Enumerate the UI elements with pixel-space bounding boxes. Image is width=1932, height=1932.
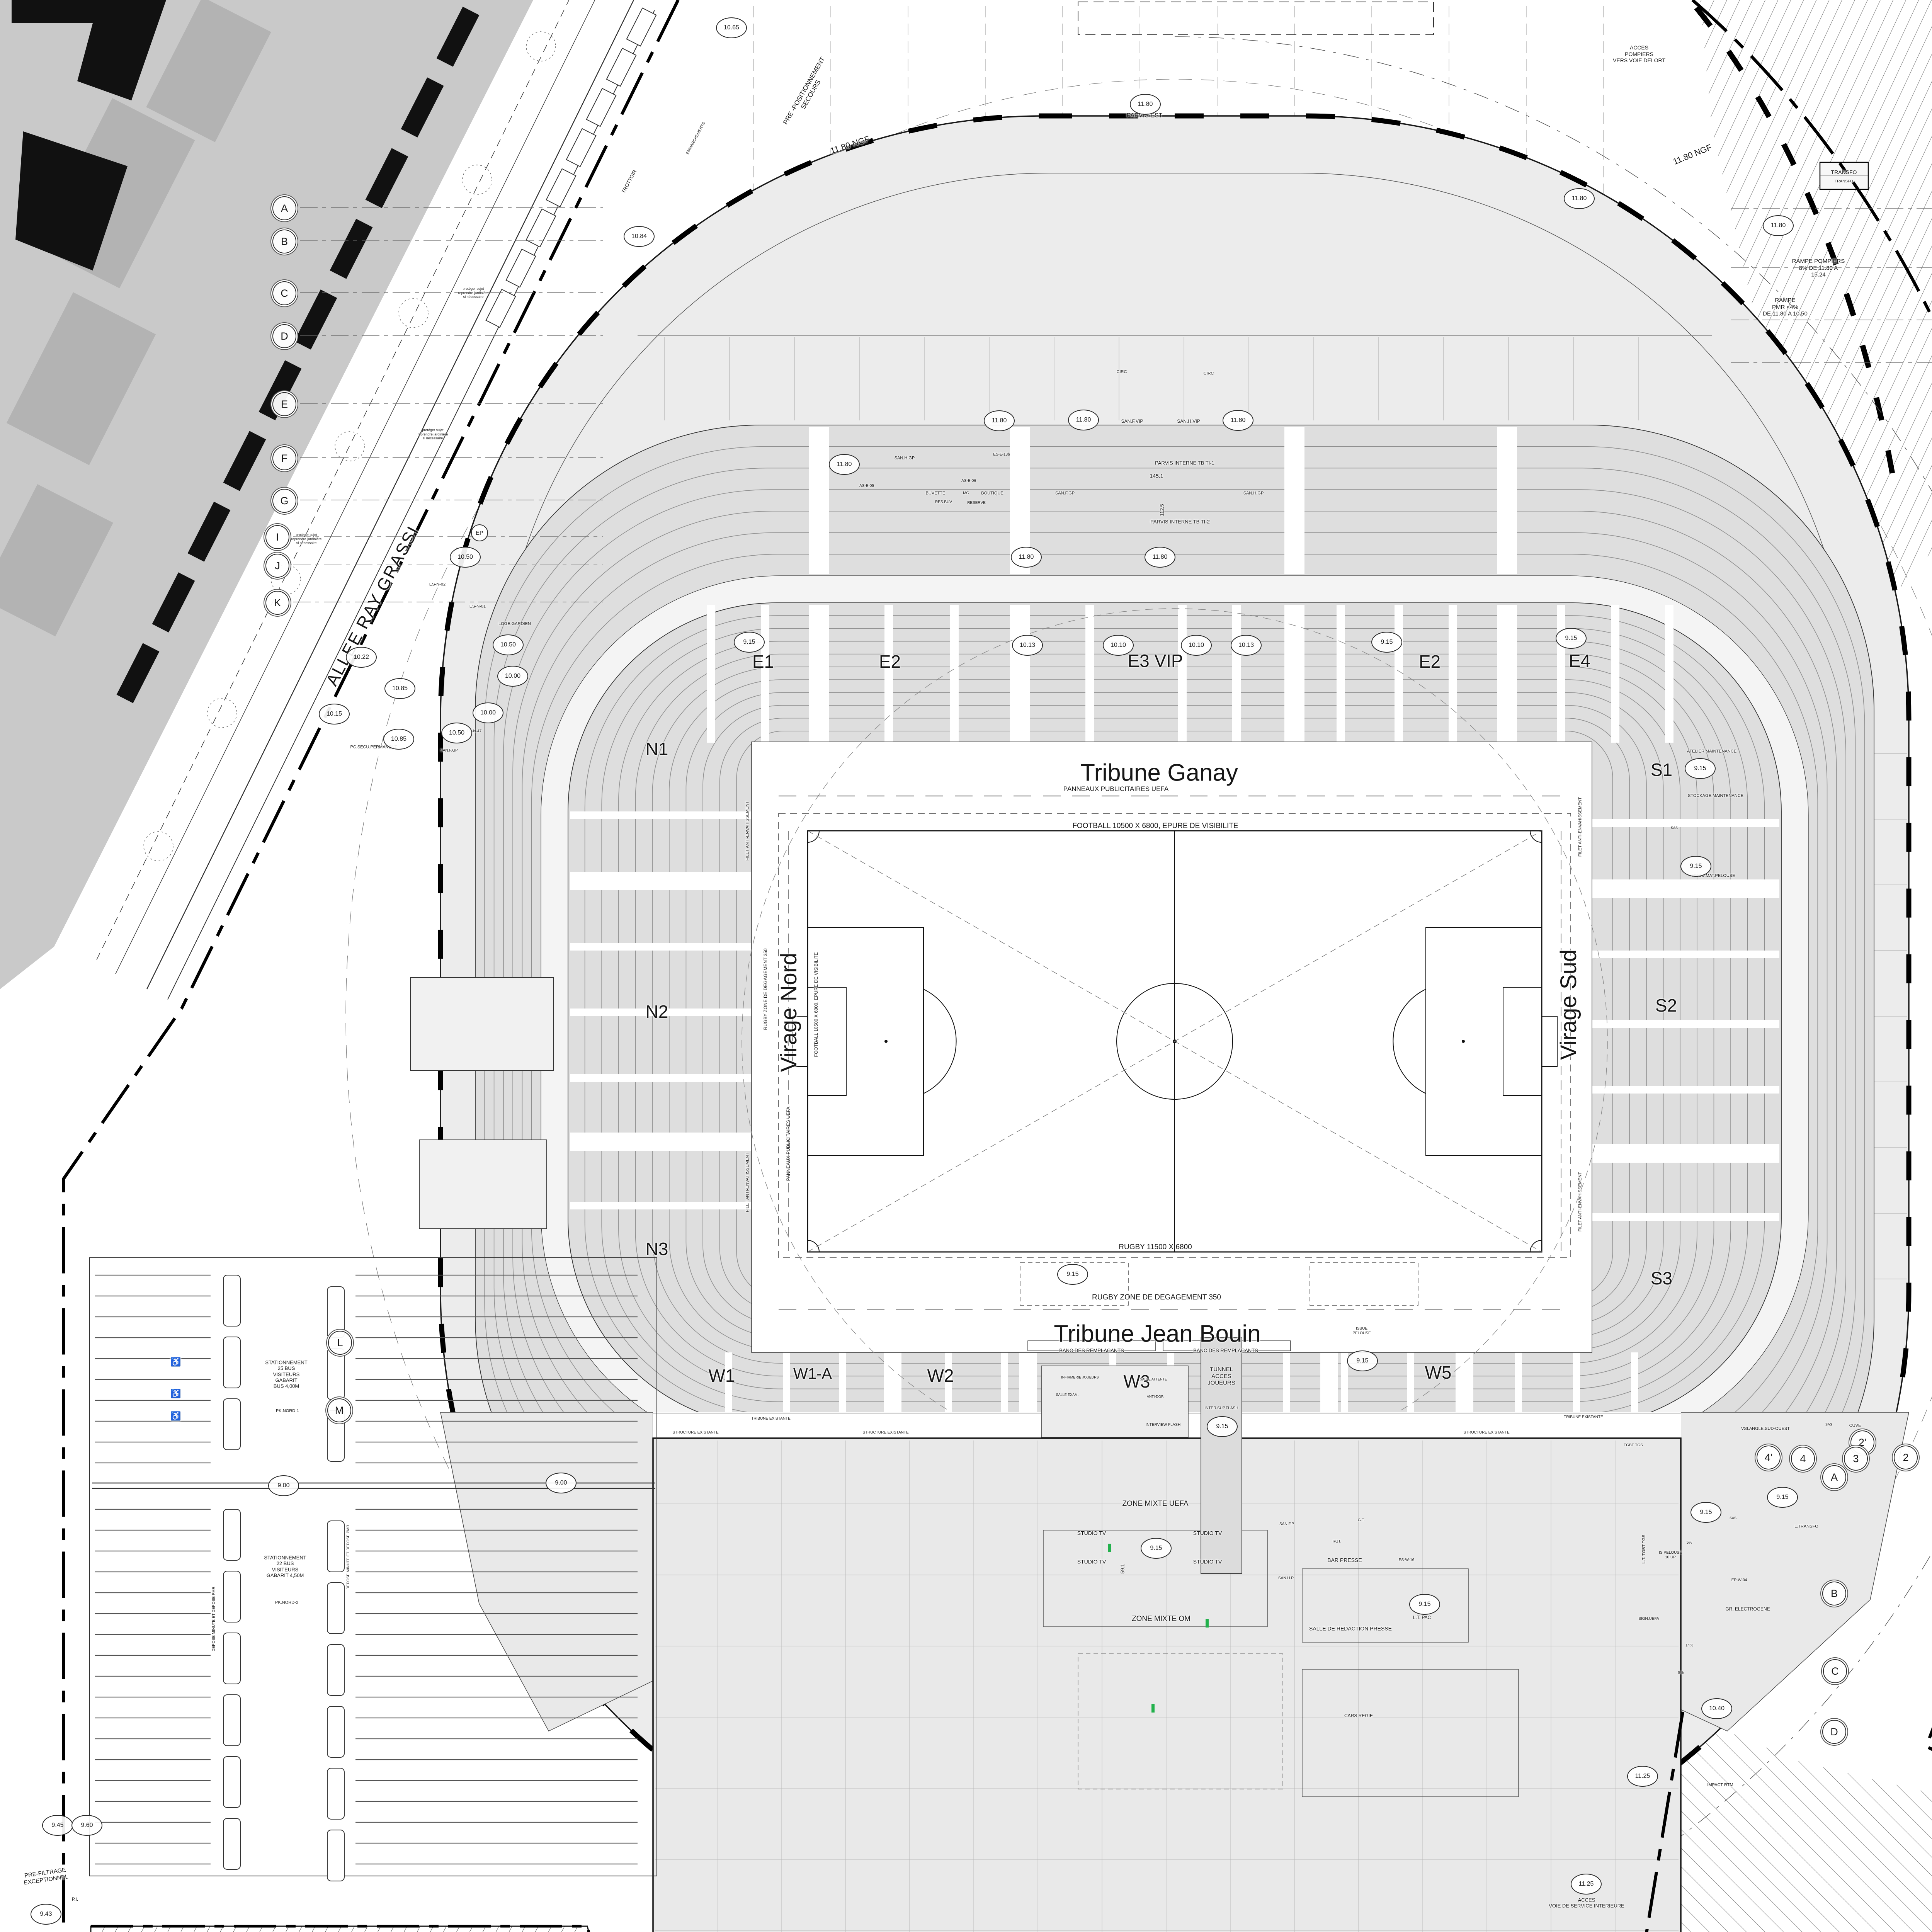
bar-presse: BAR PRESSE xyxy=(1327,1557,1362,1564)
virage-sud: Virage Sud xyxy=(1556,949,1582,1060)
rgt: RGT. xyxy=(1333,1539,1342,1544)
filet-se: FILET ANTI-ENVAHISSEMENT xyxy=(1578,1172,1583,1231)
loge-gardien: LOGE.GARDIEN xyxy=(498,622,531,627)
grid-bubble: E xyxy=(272,392,296,416)
level-marker: 9.15 xyxy=(1685,758,1716,779)
es-n-01: ES-N-01 xyxy=(469,604,486,609)
level-marker: 11.80 xyxy=(829,454,860,475)
dim-145-1: 145.1 xyxy=(1150,473,1163,480)
section-n1: N1 xyxy=(646,738,668,759)
section-e2-left: E2 xyxy=(879,651,901,672)
level-marker: 11.80 xyxy=(1223,410,1253,431)
tunnel: TUNNEL ACCES JOUEURS xyxy=(1207,1366,1235,1386)
ep-w-04: EP-W-04 xyxy=(1731,1578,1747,1583)
depose-1: DEPOSE MINUTE ET DEPOSE PMR xyxy=(212,1587,216,1651)
reserve: RESERVE xyxy=(967,501,986,505)
panneaux-uefa: PANNEAUX PUBLICITAIRES UEFA xyxy=(1063,785,1168,793)
ngf-right: 11.80 NGF xyxy=(1672,142,1713,167)
gt: G.T. xyxy=(1358,1518,1365,1523)
level-marker: 9.45 xyxy=(42,1815,73,1836)
acces-pompiers: ACCES POMPIERS VERS VOIE DELORT xyxy=(1613,44,1665,64)
pi-marker: P.I. xyxy=(72,1896,78,1902)
pct-5b: 5% xyxy=(1678,1671,1684,1675)
virage-nord: Virage Nord xyxy=(776,953,802,1072)
grid-bubble: K xyxy=(265,591,289,615)
grid-bubble: B xyxy=(1822,1582,1846,1605)
level-marker: 11.80 xyxy=(1763,215,1794,236)
level-marker: 9.15 xyxy=(1347,1350,1378,1371)
acces-voie-1: ACCES VOIE DE SERVICE INTERIEURE xyxy=(1549,1897,1624,1909)
issue-pelouse: ISSUE PELOUSE xyxy=(1352,1327,1371,1336)
lt-pac: L.T. PAC xyxy=(1413,1615,1431,1620)
grid-bubble: 2 xyxy=(1894,1446,1918,1469)
section-e4: E4 xyxy=(1569,650,1590,671)
section-e3-vip: E3 VIP xyxy=(1128,650,1183,671)
pct-14: 14% xyxy=(1685,1643,1693,1648)
grid-bubble: G xyxy=(272,489,296,513)
pmr-icon-3: ♿ xyxy=(170,1411,181,1421)
studio-tv-4: STUDIO TV xyxy=(1193,1559,1222,1565)
depose-2: DEPOSE MINUTE ET DEPOSE PMR xyxy=(346,1525,351,1590)
grid-bubble: EP xyxy=(471,524,488,541)
level-marker: 10.84 xyxy=(624,226,655,247)
grid-bubble: J xyxy=(265,554,289,578)
section-n2: N2 xyxy=(646,1001,668,1022)
sas-ring: SAS xyxy=(1671,826,1678,830)
ngf-left: 11.80 NGF xyxy=(829,134,871,156)
boutique: BOUTIQUE xyxy=(981,491,1003,496)
parvis-interne-1: PARVIS INTERNE TB TI-1 xyxy=(1155,460,1214,466)
level-marker: 10.50 xyxy=(450,547,481,568)
atelier-maintenance: ATELIER.MAINTENANCE xyxy=(1687,749,1736,754)
section-s3: S3 xyxy=(1651,1268,1672,1289)
mc: MC xyxy=(963,491,969,496)
level-marker: 11.80 xyxy=(1564,188,1595,209)
football-dim: FOOTBALL 10500 X 6800, EPURE DE VISIBILI… xyxy=(1072,822,1238,830)
tribune-jean-bouin: Tribune Jean Bouin xyxy=(1054,1320,1260,1348)
level-marker: 11.25 xyxy=(1627,1766,1658,1787)
level-marker: 9.15 xyxy=(1207,1416,1238,1437)
san-h-gp: SAN.H.GP xyxy=(1243,491,1264,496)
section-s2: S2 xyxy=(1655,995,1677,1016)
grid-bubble: D xyxy=(272,324,296,348)
level-marker: 9.15 xyxy=(1690,1502,1721,1523)
grid-bubble: 4 xyxy=(1791,1447,1815,1471)
cars-regie: CARS REGIE xyxy=(1344,1713,1373,1718)
plan-annotations: Tribune GanayTribune Jean BouinVirage No… xyxy=(0,0,1932,1932)
studio-tv-3: STUDIO TV xyxy=(1077,1559,1106,1565)
emmarchements: EMMARCHEMENTS xyxy=(685,121,706,155)
level-marker: 10.13 xyxy=(1012,635,1043,656)
anti-dop: ANTI-DOP. xyxy=(1147,1395,1164,1399)
san-h-p: SAN.H.P xyxy=(1278,1576,1294,1581)
stockage-maintenance: STOCKAGE.MAINTENANCE xyxy=(1688,794,1743,799)
grid-bubble: A xyxy=(1822,1465,1846,1489)
san-h-gp-2: SAN.H.GP xyxy=(895,456,915,461)
salle-exam: SALLE EXAM. xyxy=(1056,1393,1079,1397)
level-marker: 11.80 xyxy=(1130,94,1161,115)
studio-tv-1: STUDIO TV xyxy=(1077,1530,1106,1537)
es-n-02: ES-N-02 xyxy=(429,582,446,587)
grid-bubble: A xyxy=(272,196,296,220)
circ-1: CIRC xyxy=(1117,370,1127,375)
res-buv: RES.BUV xyxy=(935,500,952,505)
level-marker: 9.15 xyxy=(1767,1487,1798,1508)
grid-bubble: C xyxy=(272,281,296,305)
rampe-pompiers: RAMPE POMPIERS 8% DE 11.80 A 15.24 xyxy=(1792,258,1845,278)
vsi-angle: VSI.ANGLE.SUD-OUEST xyxy=(1741,1427,1790,1432)
zone-mixte-uefa: ZONE MIXTE UEFA xyxy=(1122,1500,1188,1508)
level-marker: 10.50 xyxy=(493,634,524,655)
protege-3: protéger sujet reprendre jardinière si n… xyxy=(291,533,322,545)
level-marker: 9.00 xyxy=(546,1473,577,1493)
pmr-icon-1: ♿ xyxy=(170,1357,181,1367)
banc-left: BANC DES REMPLAÇANTS xyxy=(1059,1347,1124,1353)
studio-tv-2: STUDIO TV xyxy=(1193,1530,1222,1537)
salle-redaction: SALLE DE REDACTION PRESSE xyxy=(1309,1626,1392,1632)
rugby-zone: RUGBY ZONE DE DEGAGEMENT 350 xyxy=(1092,1293,1221,1302)
pre-filtrage: PRE-FILTRAGE EXCEPTIONNEL xyxy=(22,1866,69,1886)
trottoir: TROTTOIR xyxy=(621,169,638,194)
grid-bubble: D xyxy=(1822,1720,1846,1744)
parvis-interne-2: PARVIS INTERNE TB TI-2 xyxy=(1150,519,1210,524)
sas-2: SAS xyxy=(1730,1516,1736,1520)
grid-bubble: I xyxy=(265,525,289,549)
san-f-vip: SAN.F.VIP xyxy=(1121,418,1143,424)
level-marker: 10.10 xyxy=(1181,635,1212,656)
stadium-site-plan: Tribune GanayTribune Jean BouinVirage No… xyxy=(0,0,1932,1932)
level-marker: 10.00 xyxy=(473,702,503,723)
tribune-ganay: Tribune Ganay xyxy=(1080,759,1238,787)
level-marker: 9.15 xyxy=(1141,1538,1172,1559)
section-s1: S1 xyxy=(1651,759,1672,780)
level-marker: 9.15 xyxy=(1057,1264,1088,1285)
section-w2: W2 xyxy=(927,1365,954,1386)
sign-uefa: SIGN.UEFA xyxy=(1638,1617,1659,1621)
as-e-05: AS-E-05 xyxy=(859,484,874,488)
pmr-icon-2: ♿ xyxy=(170,1389,181,1399)
es-e-13b: ES-E-13b xyxy=(993,452,1010,457)
level-marker: 9.60 xyxy=(71,1815,102,1836)
level-marker: 10.10 xyxy=(1103,635,1134,656)
rugby-zone-w: RUGBY ZONE DE DEGAGEMENT 350 xyxy=(763,949,768,1030)
tgbt-tgs: TGBT TGS xyxy=(1624,1443,1643,1448)
transfo-2: TRANSFO xyxy=(1835,179,1853,184)
level-marker: 9.15 xyxy=(734,632,765,653)
es-w-16: ES-W-16 xyxy=(1399,1558,1414,1563)
tribune-existante-1: TRIBUNE EXISTANTE xyxy=(751,1417,791,1421)
grid-bubble: B xyxy=(272,230,296,253)
level-marker: 11.80 xyxy=(984,410,1015,431)
football-dim-w: FOOTBALL 10500 X 6800, EPURE DE VISIBILI… xyxy=(813,952,819,1057)
level-marker: 9.15 xyxy=(1556,628,1587,649)
structure-existante-3: STRUCTURE EXISTANTE xyxy=(1463,1430,1509,1435)
structure-existante-2: STRUCTURE EXISTANTE xyxy=(862,1430,908,1435)
level-marker: 10.50 xyxy=(441,723,472,743)
level-marker: 11.80 xyxy=(1068,410,1099,430)
filet-ne: FILET ANTI-ENVAHISSEMENT xyxy=(1578,797,1583,857)
grid-bubble: M xyxy=(327,1398,351,1422)
rugby-dim: RUGBY 11500 X 6800 xyxy=(1119,1243,1192,1252)
as-e-06: AS-E-06 xyxy=(961,479,976,483)
is-pelouse: IS PELOUSE 10 UP xyxy=(1659,1551,1682,1560)
level-marker: 10.22 xyxy=(346,647,377,668)
transfo: TRANSFO xyxy=(1831,169,1857,176)
level-marker: 11.80 xyxy=(1145,547,1175,568)
section-w1a: W1-A xyxy=(793,1365,832,1383)
interview-flash: INTERVIEW FLASH xyxy=(1146,1423,1180,1427)
san-f-gp: SAN.F.GP xyxy=(1055,491,1075,496)
level-marker: 10.13 xyxy=(1231,635,1262,656)
circ-2: CIRC xyxy=(1204,371,1214,376)
infirmerie-joueurs: INFIRMERIE JOUEURS xyxy=(1061,1376,1099,1380)
zone-mixte-om: ZONE MIXTE OM xyxy=(1132,1615,1190,1623)
section-w5: W5 xyxy=(1425,1362,1452,1383)
stationnement-1: STATIONNEMENT 25 BUS VISITEURS GABARIT B… xyxy=(265,1360,307,1389)
protege-2: protéger sujet reprendre jardinière si n… xyxy=(418,428,448,440)
level-marker: 9.00 xyxy=(268,1475,299,1496)
san-h-vip: SAN.H.VIP xyxy=(1177,418,1200,424)
l-transfo: L.TRANSFO xyxy=(1794,1524,1818,1529)
san-f-p: SAN.F.P xyxy=(1279,1522,1294,1527)
sas-1: SAS xyxy=(1825,1423,1832,1427)
inter-sup-flash: INTER.SUP.FLASH xyxy=(1204,1406,1238,1411)
grid-bubble: 3 xyxy=(1844,1447,1868,1471)
section-e1: E1 xyxy=(752,651,774,672)
structure-existante-1: STRUCTURE EXISTANTE xyxy=(672,1430,718,1435)
pk-nord-1: PK.NORD-1 xyxy=(276,1409,299,1414)
section-e2-right: E2 xyxy=(1419,651,1440,672)
allee-ray-grassi: ALLEE RAY GRASSI xyxy=(322,522,424,689)
level-marker: 9.15 xyxy=(1371,632,1402,653)
level-marker: 10.40 xyxy=(1701,1698,1732,1719)
buvette: BUVETTE xyxy=(926,491,946,496)
level-marker: 10.00 xyxy=(497,666,528,687)
san-f-gp-n: SAN.F.GP xyxy=(440,748,458,753)
gr-electrogene: GR. ELECTROGENE xyxy=(1725,1606,1770,1612)
stationnement-2: STATIONNEMENT 22 BUS VISITEURS GABARIT 4… xyxy=(264,1554,306,1578)
grid-bubble: L xyxy=(328,1331,352,1355)
level-marker: 10.65 xyxy=(716,17,747,38)
panneaux-uefa-w: PANNEAUX PUBLICITAIRES UEFA xyxy=(786,1107,791,1181)
tribune-existante-2: TRIBUNE EXISTANTE xyxy=(1564,1415,1603,1420)
level-marker: 10.85 xyxy=(384,678,415,699)
level-marker: 11.25 xyxy=(1571,1874,1602,1895)
lt-tgbt-tgs: L.T. TGBT TGS xyxy=(1642,1534,1647,1563)
cuve: CUVE xyxy=(1849,1423,1861,1429)
grid-bubble: C xyxy=(1823,1659,1847,1683)
salle-attente: SALLE ATTENTE xyxy=(1140,1378,1167,1382)
level-marker: 11.80 xyxy=(1011,547,1042,568)
level-marker: 9.43 xyxy=(31,1904,61,1925)
grid-bubble: 4' xyxy=(1757,1446,1781,1469)
banc-right: BANC DES REMPLAÇANTS xyxy=(1193,1347,1258,1353)
section-n3: N3 xyxy=(646,1238,668,1259)
level-marker: 10.15 xyxy=(319,704,350,724)
pk-nord-2: PK.NORD-2 xyxy=(275,1600,298,1605)
pct-5a: 5% xyxy=(1687,1541,1692,1545)
impact-rtm: IMPACT RTM xyxy=(1707,1783,1733,1788)
pre-positionnement: PRE -POSITIONNEMENT SECOURS xyxy=(782,56,833,130)
filet-sw: FILET ANTI-ENVAHISSEMENT xyxy=(745,1153,750,1212)
dim-59-1: 59.1 xyxy=(1119,1564,1125,1573)
section-w1: W1 xyxy=(709,1365,735,1386)
filet-nw: FILET ANTI-ENVAHISSEMENT xyxy=(745,801,750,861)
protege-1: protéger sujet reprendre jardinière si n… xyxy=(458,287,489,299)
rampe-pmr: RAMPE PMR <4% DE 11.80 A 10.50 xyxy=(1763,297,1808,317)
dim-112-5: 112.5 xyxy=(1159,504,1165,516)
level-marker: 9.15 xyxy=(1409,1594,1440,1615)
level-marker: 9.15 xyxy=(1680,856,1711,877)
level-marker: 10.85 xyxy=(383,729,414,750)
grid-bubble: F xyxy=(272,446,296,470)
